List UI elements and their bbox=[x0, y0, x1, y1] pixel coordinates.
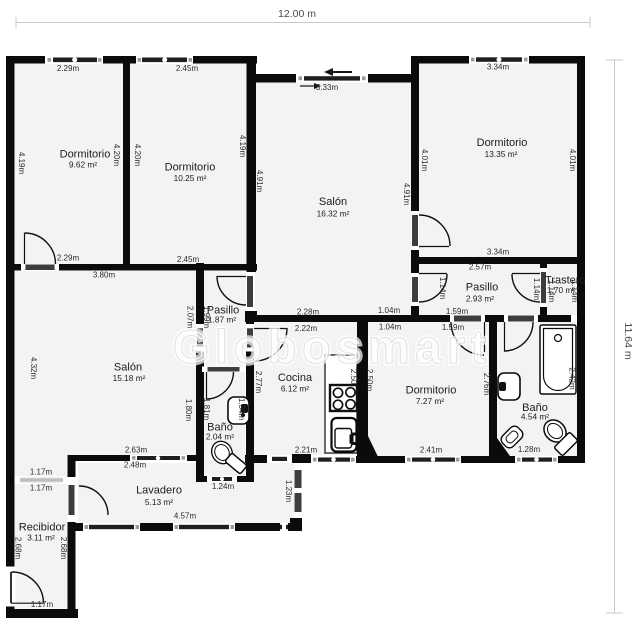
svg-text:Globosmart: Globosmart bbox=[173, 320, 492, 373]
svg-text:3.34m: 3.34m bbox=[487, 63, 510, 72]
svg-text:2.45m: 2.45m bbox=[176, 64, 199, 73]
svg-text:9.62 m²: 9.62 m² bbox=[69, 160, 97, 170]
svg-text:1.23m: 1.23m bbox=[284, 480, 293, 503]
svg-text:2.21m: 2.21m bbox=[295, 446, 318, 455]
svg-text:4.57m: 4.57m bbox=[174, 512, 197, 521]
svg-text:1.81m: 1.81m bbox=[202, 398, 211, 421]
svg-text:2.68m: 2.68m bbox=[14, 537, 23, 560]
svg-text:5.13 m²: 5.13 m² bbox=[145, 497, 173, 507]
svg-text:4.01m: 4.01m bbox=[568, 149, 577, 172]
svg-text:4.20m: 4.20m bbox=[133, 144, 142, 167]
svg-text:1.59m: 1.59m bbox=[446, 307, 469, 316]
svg-text:2.41m: 2.41m bbox=[420, 446, 443, 455]
svg-text:12.00 m: 12.00 m bbox=[278, 8, 316, 20]
svg-text:2.77m: 2.77m bbox=[254, 371, 263, 394]
svg-text:Cocina: Cocina bbox=[278, 372, 313, 384]
svg-text:2.29m: 2.29m bbox=[57, 254, 80, 263]
svg-text:2.04 m²: 2.04 m² bbox=[206, 432, 234, 442]
svg-text:2.76m: 2.76m bbox=[482, 373, 491, 396]
svg-text:Salón: Salón bbox=[319, 196, 347, 208]
svg-text:2.42m: 2.42m bbox=[568, 367, 577, 390]
svg-text:4.54 m²: 4.54 m² bbox=[521, 412, 549, 422]
svg-text:2.45m: 2.45m bbox=[177, 255, 200, 264]
svg-text:10.25 m²: 10.25 m² bbox=[174, 173, 207, 183]
svg-text:1.24m: 1.24m bbox=[212, 482, 235, 491]
svg-text:1.34m: 1.34m bbox=[237, 398, 246, 421]
svg-text:1.14m: 1.14m bbox=[570, 280, 579, 303]
svg-text:2.68m: 2.68m bbox=[59, 537, 68, 560]
svg-text:4.19m: 4.19m bbox=[17, 152, 26, 175]
svg-text:Dormitorio: Dormitorio bbox=[477, 137, 528, 149]
svg-text:1.04m: 1.04m bbox=[378, 306, 401, 315]
svg-text:2.48m: 2.48m bbox=[124, 461, 147, 470]
svg-text:2.57m: 2.57m bbox=[469, 263, 492, 272]
svg-text:4.32m: 4.32m bbox=[29, 357, 38, 380]
svg-text:2.28m: 2.28m bbox=[297, 308, 320, 317]
svg-text:15.18 m²: 15.18 m² bbox=[113, 373, 146, 383]
svg-text:Lavadero: Lavadero bbox=[136, 485, 182, 497]
svg-text:4.91m: 4.91m bbox=[255, 170, 264, 193]
svg-text:Pasillo: Pasillo bbox=[466, 282, 498, 294]
svg-text:6.12 m²: 6.12 m² bbox=[281, 384, 309, 394]
svg-text:1.14m: 1.14m bbox=[547, 280, 556, 303]
svg-text:4.01m: 4.01m bbox=[420, 149, 429, 172]
svg-text:1.17m: 1.17m bbox=[30, 468, 53, 477]
svg-text:3.33m: 3.33m bbox=[316, 83, 339, 92]
svg-text:3.11 m²: 3.11 m² bbox=[27, 533, 55, 543]
svg-text:2.93 m²: 2.93 m² bbox=[466, 294, 494, 304]
svg-text:2.63m: 2.63m bbox=[125, 446, 148, 455]
svg-text:3.80m: 3.80m bbox=[93, 271, 116, 280]
svg-text:Dormitorio: Dormitorio bbox=[165, 162, 216, 174]
svg-text:3.34m: 3.34m bbox=[487, 248, 510, 257]
svg-text:11.64 m: 11.64 m bbox=[622, 322, 634, 359]
svg-text:4.19m: 4.19m bbox=[238, 135, 247, 158]
svg-text:7.27 m²: 7.27 m² bbox=[416, 396, 444, 406]
svg-text:1.80m: 1.80m bbox=[184, 399, 193, 422]
svg-text:13.35 m²: 13.35 m² bbox=[485, 149, 518, 159]
svg-text:Dormitorio: Dormitorio bbox=[406, 385, 457, 397]
svg-text:1.28m: 1.28m bbox=[518, 445, 541, 454]
svg-text:2.29m: 2.29m bbox=[57, 64, 80, 73]
svg-text:4.20m: 4.20m bbox=[112, 144, 121, 167]
svg-text:1.14m: 1.14m bbox=[532, 278, 541, 301]
svg-text:Salón: Salón bbox=[114, 362, 142, 374]
svg-text:16.32 m²: 16.32 m² bbox=[317, 209, 350, 219]
svg-text:1.17m: 1.17m bbox=[30, 484, 53, 493]
svg-text:4.91m: 4.91m bbox=[402, 183, 411, 206]
svg-text:1.14m: 1.14m bbox=[438, 277, 447, 300]
svg-text:1.17m: 1.17m bbox=[31, 600, 54, 609]
